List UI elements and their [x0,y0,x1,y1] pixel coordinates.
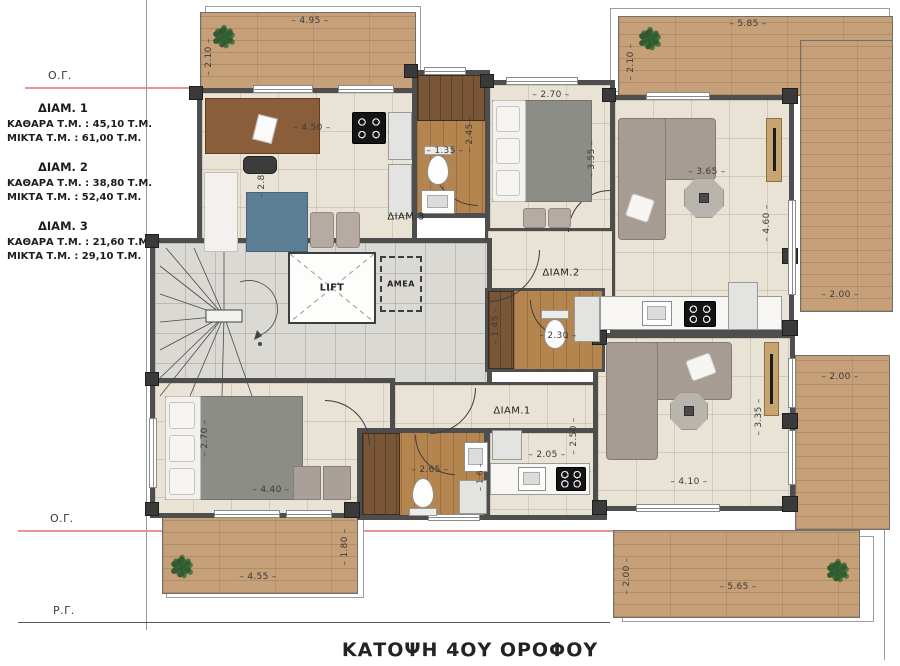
bed-pillow [496,106,520,132]
dim-balcony-tr-height: 2.10 [626,43,636,80]
window [788,200,796,295]
property-line-right [884,525,885,660]
window [788,430,796,485]
column [602,88,616,102]
dim-bath3-height: 2.45 [465,115,475,152]
column [344,502,360,518]
column [782,320,798,336]
dim-bed2-height: 3.55 [587,140,597,177]
bathroom-sink [421,190,455,214]
elevator-lift: LIFT [288,252,376,324]
toilet [412,478,434,508]
dim-studio-height: 2.80 [257,160,267,197]
tv-unit [766,118,782,182]
deck-right-upper [800,40,893,312]
apartment-1-net-area: ΚΑΘΑΡΑ Τ.Μ. : 45,10 Τ.Μ. [7,119,152,130]
apartment-1-name: ΔΙΑΜ. 1 [38,101,88,115]
apartment-2-net-area: ΚΑΘΑΡΑ Τ.Μ. : 38,80 Τ.Μ. [7,178,152,189]
room-label-diam1: ΔΙΑΜ.1 [493,406,530,417]
column [145,502,159,516]
kitchen-cabinet [492,430,522,460]
studio-daybed [246,192,308,252]
column [404,64,418,78]
floor-plan-canvas: Ο.Γ. Ο.Γ. Ρ.Γ. ΔΙΑΜ. 1 ΚΑΘΑΡΑ Τ.Μ. : 45,… [0,0,900,666]
apartment-3-name: ΔΙΑΜ. 3 [38,219,88,233]
dim-balcony-br-height: 2.00 [622,557,632,594]
apartment-2-gross-area: ΜΙΚΤΑ Τ.Μ. : 52,40 Τ.Μ. [7,192,141,203]
og-bottom-label: Ο.Γ. [50,512,74,525]
dim-bed1-height: 2.70 [200,419,210,456]
wardrobe [323,466,351,500]
amea-label: AMEA [387,280,415,289]
dim-balcony-bl-width: 4.55 [239,572,276,582]
tv-unit [764,342,779,416]
kitchen-unit [388,112,412,160]
amea-lift-area: AMEA [380,256,422,312]
dim-bath2-width: 2.30 [539,331,576,341]
dim-bed1-width: 4.40 [252,485,289,495]
dim-studio-width: 4.50 [293,123,330,133]
seat-cushion [336,212,360,248]
column [782,496,798,512]
dim-liv2-height: 4.60 [762,204,772,241]
column [189,86,203,100]
bath-cabinet [574,296,600,342]
dim-bath3-width: 1.35 [426,146,463,156]
wardrobe [293,466,321,500]
dim-bath1-width: 2.65 [411,465,448,475]
dim-balcony-br-width: 5.65 [719,582,756,592]
kitchen-unit [388,164,412,216]
dim-liv2-width: 3.65 [688,167,725,177]
window [788,358,796,408]
refrigerator [728,282,758,330]
og-top-label: Ο.Γ. [48,69,72,82]
window [214,510,280,518]
window [253,85,313,93]
staircase [156,244,278,400]
toilet-tank [409,508,437,516]
room-label-diam3: ΔΙΑΜ.3 [387,212,424,223]
corner-sofa [618,118,666,240]
column [480,74,494,88]
corner-sofa [606,342,658,460]
property-line-left [146,0,147,630]
window [286,510,332,518]
dim-bed2-width: 2.70 [532,90,569,100]
window [338,85,394,93]
window [646,92,710,100]
studio-sofa [204,172,238,252]
column [782,413,798,429]
window [636,504,720,512]
plant-icon: ✽ [827,557,849,587]
dim-bath1-height: 1.6 [476,463,485,491]
plot-line-bottom [18,622,610,623]
dim-balcony-tl-width: 4.95 [291,16,328,26]
room-label-diam2: ΔΙΑΜ.2 [542,268,579,279]
dim-deck-right-bottom: 2.00 [821,372,858,382]
apartment-2-name: ΔΙΑΜ. 2 [38,160,88,174]
bed-bench [548,208,571,228]
apartment-3-gross-area: ΜΙΚΤΑ Τ.Μ. : 29,10 Τ.Μ. [7,251,141,262]
table-decor [684,406,694,416]
dim-bath2-height: 1.45 [491,307,501,344]
balcony-bottom-right [613,530,860,618]
dim-kit1-width: 2.05 [528,450,565,460]
bed-pillow [496,138,520,164]
bed-pillow [169,402,195,429]
cooktop [352,112,386,144]
shower-diam3 [417,75,485,121]
window [424,67,466,75]
plant-icon: ✽ [213,23,235,53]
column [782,88,798,104]
dim-balcony-tl-height: 2.10 [204,38,214,75]
bed-pillow [496,170,520,196]
table-decor [699,193,709,203]
dim-liv1-width: 4.10 [670,477,707,487]
column [592,500,607,515]
seat-cushion [310,212,334,248]
bed-pillow [169,468,195,495]
toilet-tank [541,310,569,319]
toilet [427,155,449,185]
plant-icon: ✽ [639,25,661,55]
window [506,77,578,85]
window [149,418,157,488]
apartment-3-net-area: ΚΑΘΑΡΑ Τ.Μ. : 21,60 Τ.Μ. [7,237,152,248]
lift-label: LIFT [320,283,345,294]
bed-bench [523,208,546,228]
shower-diam1 [362,433,400,515]
plant-icon: ✽ [171,553,193,583]
dim-balcony-tr-width: 5.85 [729,19,766,29]
cooktop [684,301,716,327]
dim-balcony-bl-height: 1.80 [340,528,350,565]
dim-liv1-height: 3.35 [754,398,764,435]
rg-label: Ρ.Γ. [53,604,75,617]
kitchen-sink [642,301,672,326]
bed-pillow [169,435,195,462]
kitchen-sink [518,467,546,491]
dim-kit1-height: 2.50 [569,417,579,454]
drawing-title: ΚΑΤΟΨΗ 4ΟΥ ΟΡΟΦΟΥ [342,639,598,661]
cooktop [556,467,586,491]
apartment-1-gross-area: ΜΙΚΤΑ Τ.Μ. : 61,00 Τ.Μ. [7,133,141,144]
dim-deck-right-top: 2.00 [821,290,858,300]
